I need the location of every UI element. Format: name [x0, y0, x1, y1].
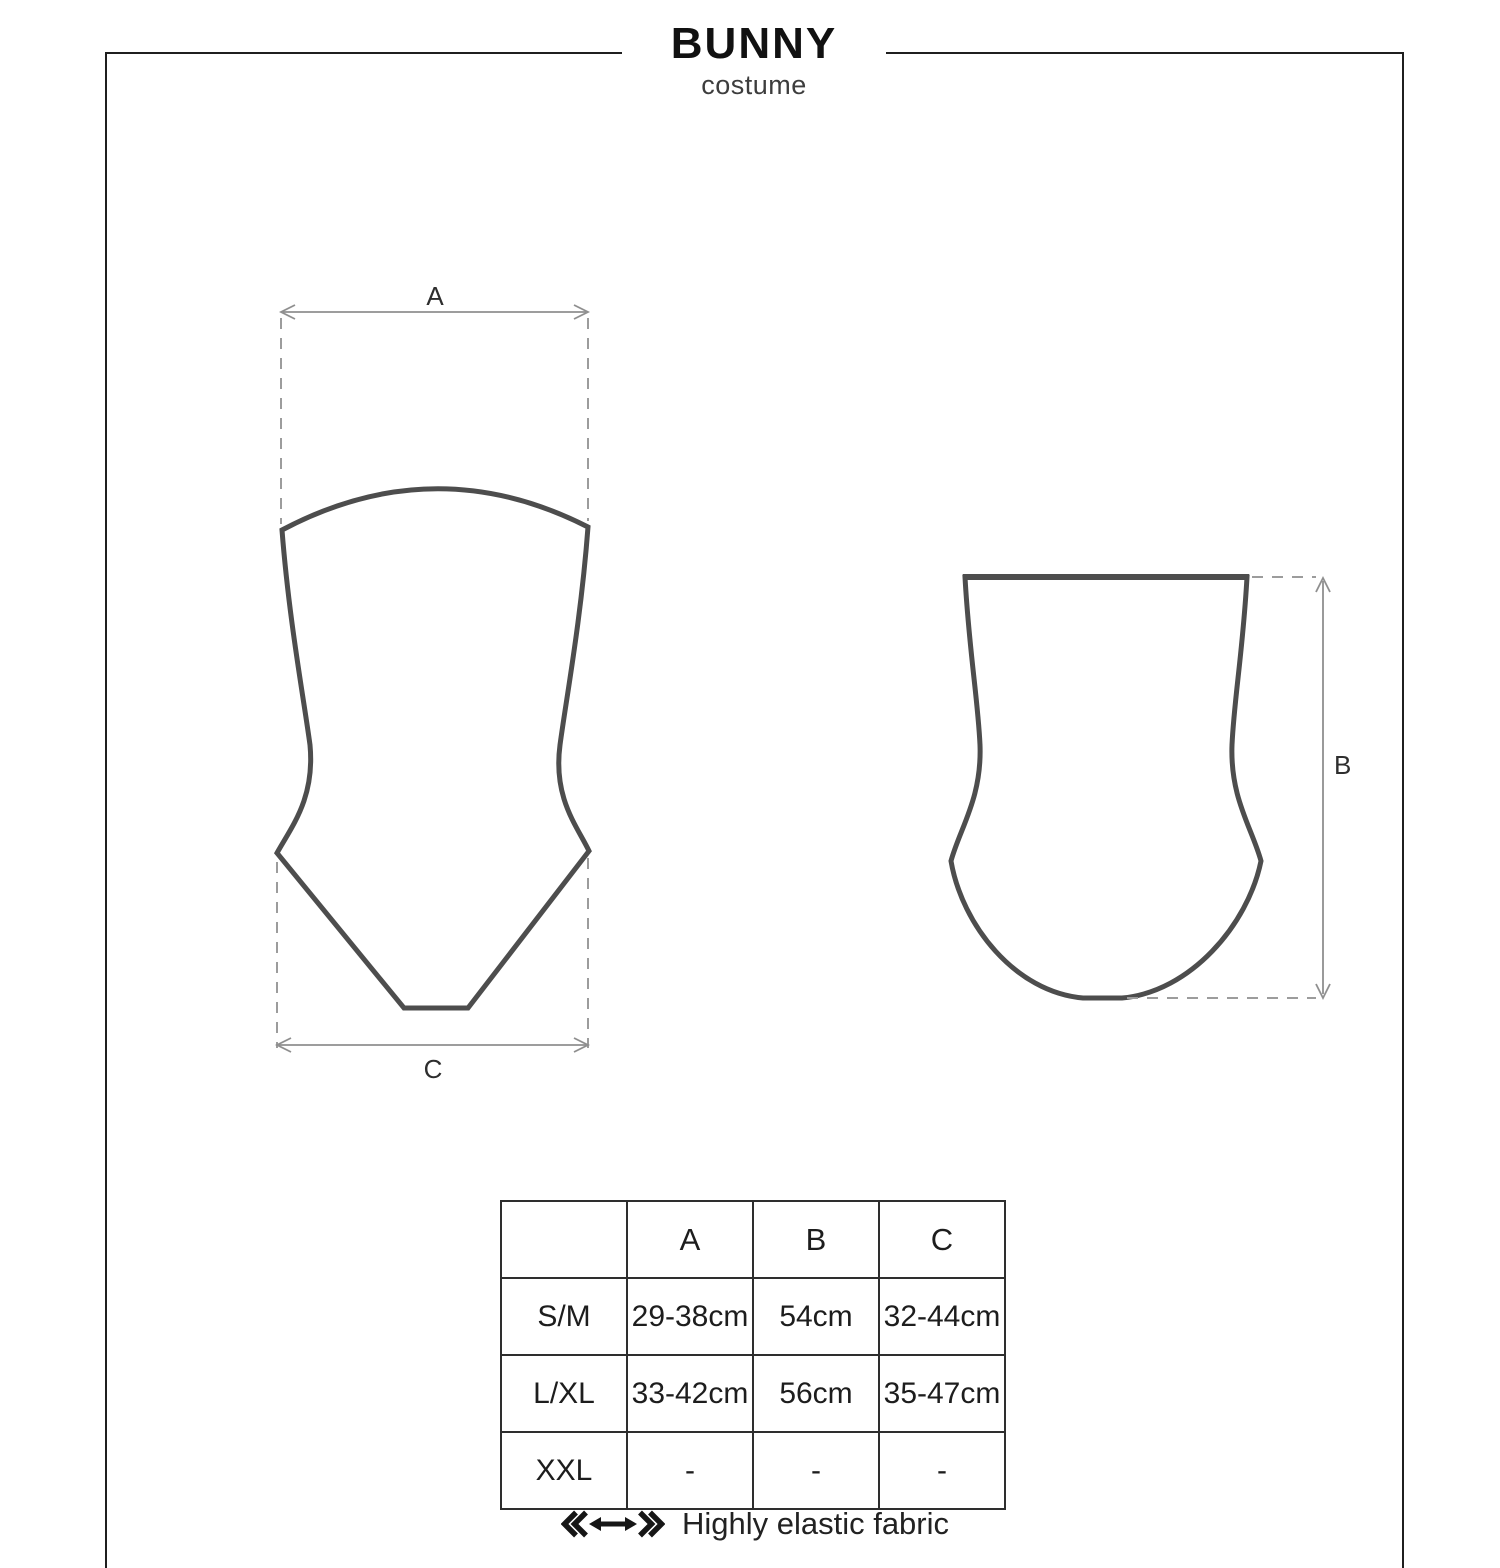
col-header-a: A — [627, 1201, 753, 1278]
table-row-lxl: L/XL 33-42cm 56cm 35-47cm — [501, 1355, 1005, 1432]
product-title-box: BUNNY costume — [622, 0, 886, 128]
stretch-arrow-icon — [561, 1509, 665, 1539]
front-garment-outline — [277, 489, 589, 1008]
product-name: BUNNY — [622, 22, 886, 66]
product-type: costume — [622, 70, 886, 101]
value-a: - — [627, 1432, 753, 1509]
col-header-c: C — [879, 1201, 1005, 1278]
value-a: 29-38cm — [627, 1278, 753, 1355]
fabric-legend: Highly elastic fabric — [375, 1506, 1135, 1542]
value-b: 56cm — [753, 1355, 879, 1432]
value-c: 35-47cm — [879, 1355, 1005, 1432]
back-garment-outline — [951, 577, 1261, 998]
value-c: 32-44cm — [879, 1278, 1005, 1355]
value-b: - — [753, 1432, 879, 1509]
value-b: 54cm — [753, 1278, 879, 1355]
value-c: - — [879, 1432, 1005, 1509]
size-label: XXL — [501, 1432, 627, 1509]
back-view-garment — [951, 577, 1261, 998]
size-table-header-row: A B C — [501, 1201, 1005, 1278]
size-table: A B C S/M 29-38cm 54cm 32-44cm L/XL 33-4… — [500, 1200, 1006, 1510]
size-label: S/M — [501, 1278, 627, 1355]
dimension-c-label: C — [424, 1054, 443, 1084]
dimension-b: B — [1127, 577, 1351, 998]
fabric-legend-label: Highly elastic fabric — [682, 1506, 949, 1542]
dimension-a-label: A — [426, 281, 444, 311]
col-header-b: B — [753, 1201, 879, 1278]
corner-cell — [501, 1201, 627, 1278]
size-label: L/XL — [501, 1355, 627, 1432]
value-a: 33-42cm — [627, 1355, 753, 1432]
table-row-sm: S/M 29-38cm 54cm 32-44cm — [501, 1278, 1005, 1355]
dimension-b-label: B — [1334, 750, 1351, 780]
size-chart-page: BUNNY costume A C — [0, 0, 1500, 1568]
dimension-c: C — [277, 858, 588, 1084]
front-view-garment — [277, 489, 589, 1008]
table-row-xxl: XXL - - - — [501, 1432, 1005, 1509]
